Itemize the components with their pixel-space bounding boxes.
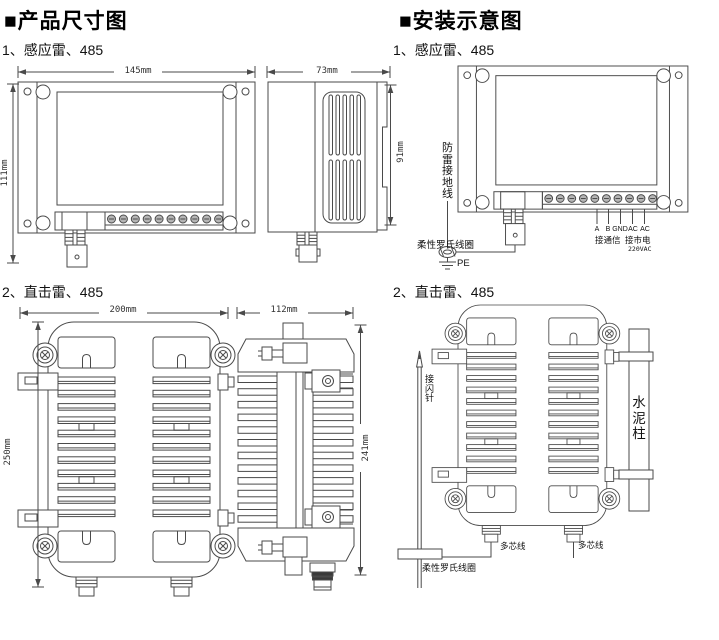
dim-front1-height: 111mm (0, 149, 11, 197)
label-rogowski-coil-1: 柔性罗氏线圈 (417, 237, 474, 251)
dim-front2-width: 200mm (99, 304, 147, 316)
technical-document-page: ■产品尺寸图 ■安装示意图 1、感应雷、485 1、感应雷、485 2、直击雷、… (0, 0, 719, 640)
dim-side1-height: 91mm (395, 128, 407, 176)
label-pe-ground: PE (457, 258, 470, 269)
subtitle-induction-lightning-left: 1、感应雷、485 (2, 40, 103, 60)
heading-product-dimensions: ■产品尺寸图 (4, 5, 128, 35)
technical-drawing-canvas (0, 0, 719, 640)
terminal-label-ac2: AC (634, 226, 656, 233)
dim-front2-height: 250mm (2, 428, 14, 476)
label-rogowski-coil-2: 柔性罗氏线圈 (422, 561, 476, 574)
label-air-terminal-rod: 接闪针 (424, 375, 435, 404)
label-multicore-wire-left: 多芯线 (500, 540, 526, 552)
subtitle-direct-lightning-right: 2、直击雷、485 (393, 282, 494, 302)
dim-side1-width: 73mm (303, 65, 351, 77)
label-comm-port: 接通信 (595, 234, 621, 246)
subtitle-induction-lightning-right: 1、感应雷、485 (393, 40, 494, 60)
label-mains-voltage: 220VAC (628, 245, 651, 253)
heading-installation: ■安装示意图 (399, 5, 523, 35)
label-cement-pillar: 水泥柱 (631, 395, 647, 442)
label-lightning-ground-wire: 防雷接地线 (441, 143, 454, 201)
dim-side2-height: 241mm (360, 424, 372, 472)
label-multicore-wire-right: 多芯线 (578, 539, 604, 551)
subtitle-direct-lightning-left: 2、直击雷、485 (2, 282, 103, 302)
dim-front1-width: 145mm (114, 65, 162, 77)
dim-side2-width: 112mm (260, 304, 308, 316)
